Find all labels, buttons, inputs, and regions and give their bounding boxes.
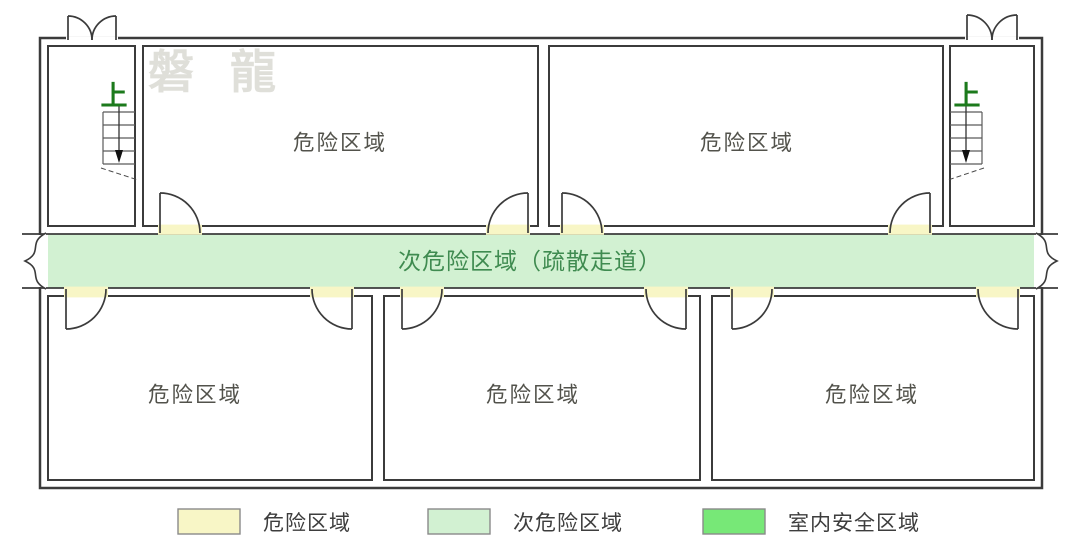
door-opening bbox=[730, 287, 774, 298]
floor-plan-page: 磐 龍 危险区域 危险区域 危险区域 危险区域 危险区域 次危险区域（疏散走道）… bbox=[0, 0, 1080, 553]
watermark-text: 磐 龍 bbox=[148, 45, 286, 99]
corridor-label: 次危险区域（疏散走道） bbox=[398, 249, 662, 275]
double-exit-door-left-icon bbox=[68, 16, 116, 40]
legend: 危险区域 次危险区域 室内安全区域 bbox=[178, 509, 920, 535]
door-opening bbox=[486, 225, 530, 235]
room-label-bottom-left: 危险区域 bbox=[148, 383, 242, 408]
door-opening bbox=[888, 225, 932, 235]
door-opening bbox=[976, 287, 1020, 298]
floor-plan-diagram: 磐 龍 危险区域 危险区域 危险区域 危险区域 危险区域 次危险区域（疏散走道）… bbox=[0, 0, 1080, 553]
stairs-up-label-left: 上 bbox=[101, 81, 128, 112]
door-opening bbox=[310, 287, 354, 298]
door-opening bbox=[560, 225, 604, 235]
room-label-top-left: 危险区域 bbox=[293, 131, 387, 156]
door-opening bbox=[644, 287, 688, 298]
legend-label-secondary: 次危险区域 bbox=[513, 511, 623, 535]
door-opening bbox=[158, 225, 202, 235]
legend-swatch-safe bbox=[703, 509, 765, 534]
legend-label-safe: 室内安全区域 bbox=[788, 511, 920, 535]
room-label-bottom-middle: 危险区域 bbox=[486, 383, 580, 408]
stairs-up-label-right: 上 bbox=[954, 81, 981, 112]
room-label-top-right: 危险区域 bbox=[700, 131, 794, 156]
legend-swatch-hazard bbox=[178, 509, 240, 534]
door-opening bbox=[64, 287, 108, 298]
legend-label-hazard: 危险区域 bbox=[263, 511, 351, 535]
room-label-bottom-right: 危险区域 bbox=[825, 383, 919, 408]
double-exit-door-right-icon bbox=[967, 15, 1017, 40]
legend-swatch-secondary bbox=[428, 509, 490, 534]
door-opening bbox=[400, 287, 444, 298]
